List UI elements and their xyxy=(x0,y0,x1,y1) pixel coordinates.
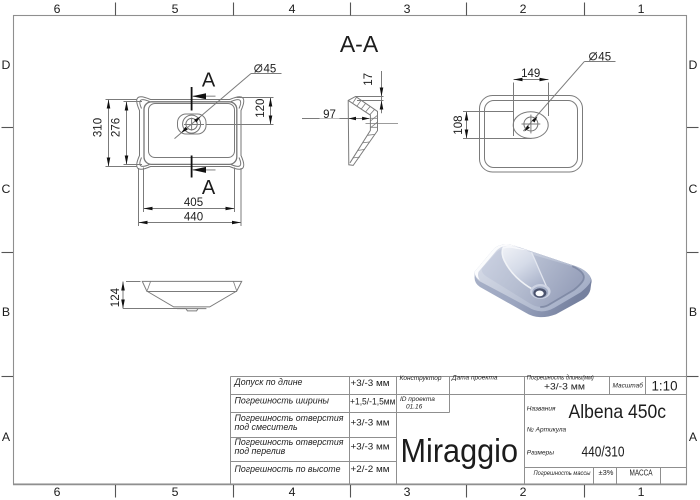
svg-text:108: 108 xyxy=(453,116,465,135)
svg-text:Конструктор: Конструктор xyxy=(400,375,442,382)
svg-text:+3/-3 мм: +3/-3 мм xyxy=(544,381,585,392)
svg-text:45: 45 xyxy=(264,63,277,75)
svg-text:440/310: 440/310 xyxy=(582,443,625,460)
svg-text:Погрешность ширины: Погрешность ширины xyxy=(235,396,330,406)
svg-text:45: 45 xyxy=(598,51,611,63)
svg-text:C: C xyxy=(689,182,698,196)
svg-text:5: 5 xyxy=(172,2,179,16)
svg-text:A: A xyxy=(2,430,11,444)
svg-text:6: 6 xyxy=(54,485,61,499)
svg-text:B: B xyxy=(2,305,10,319)
svg-text:1:10: 1:10 xyxy=(652,379,678,394)
svg-text:3: 3 xyxy=(404,485,411,499)
svg-text:D: D xyxy=(2,58,11,72)
svg-text:4: 4 xyxy=(289,485,296,499)
svg-text:+3/-3 мм: +3/-3 мм xyxy=(351,418,390,429)
svg-text:6: 6 xyxy=(54,2,61,16)
svg-text:+3/-3 мм: +3/-3 мм xyxy=(351,442,390,453)
svg-text:A: A xyxy=(202,177,216,199)
svg-text:1: 1 xyxy=(638,485,645,499)
svg-text:Погрешность массы: Погрешность массы xyxy=(534,470,591,477)
svg-text:+2/-2 мм: +2/-2 мм xyxy=(351,464,390,475)
svg-text:4: 4 xyxy=(289,2,296,16)
svg-text:Дата проекта: Дата проекта xyxy=(451,375,498,382)
svg-text:Albena 450c: Albena 450c xyxy=(569,401,667,423)
svg-text:Названия: Названия xyxy=(527,406,556,413)
svg-text:Miraggio: Miraggio xyxy=(401,433,519,470)
svg-text:440: 440 xyxy=(184,212,203,224)
svg-text:120: 120 xyxy=(255,99,267,118)
svg-text:17: 17 xyxy=(363,73,375,86)
svg-text:A: A xyxy=(202,69,216,91)
svg-text:276: 276 xyxy=(111,118,123,137)
svg-text:+1,5/-1,5мм: +1,5/-1,5мм xyxy=(350,397,396,408)
svg-text:405: 405 xyxy=(184,197,203,209)
svg-text:2: 2 xyxy=(520,485,527,499)
svg-text:3: 3 xyxy=(404,2,411,16)
svg-text:под перелив: под перелив xyxy=(235,446,286,456)
svg-text:+3/-3 мм: +3/-3 мм xyxy=(351,378,390,389)
svg-text:Допуск по длине: Допуск по длине xyxy=(234,377,303,387)
svg-text:±3%: ±3% xyxy=(599,468,614,477)
svg-text:2: 2 xyxy=(520,2,527,16)
svg-text:ID проекта: ID проекта xyxy=(400,396,435,403)
svg-text:97: 97 xyxy=(323,109,336,121)
svg-text:B: B xyxy=(689,305,697,319)
svg-text:1: 1 xyxy=(638,2,645,16)
svg-text:под смеситель: под смеситель xyxy=(235,422,298,432)
svg-text:01.16: 01.16 xyxy=(406,404,423,411)
svg-text:A: A xyxy=(689,430,698,444)
svg-text:МАССА: МАССА xyxy=(630,468,653,478)
svg-text:310: 310 xyxy=(92,118,104,137)
svg-text:A-A: A-A xyxy=(340,31,379,57)
svg-text:149: 149 xyxy=(521,68,540,80)
svg-text:Погрешность по высоте: Погрешность по высоте xyxy=(235,464,341,474)
svg-text:Масштаб: Масштаб xyxy=(613,382,644,390)
svg-text:C: C xyxy=(2,182,11,196)
svg-text:5: 5 xyxy=(172,485,179,499)
svg-text:D: D xyxy=(689,58,698,72)
svg-text:Погрешность длины(мм): Погрешность длины(мм) xyxy=(527,374,594,382)
svg-text:124: 124 xyxy=(110,287,122,307)
svg-text:№ Артикула: № Артикула xyxy=(527,427,567,434)
svg-text:Размеры: Размеры xyxy=(527,450,554,457)
